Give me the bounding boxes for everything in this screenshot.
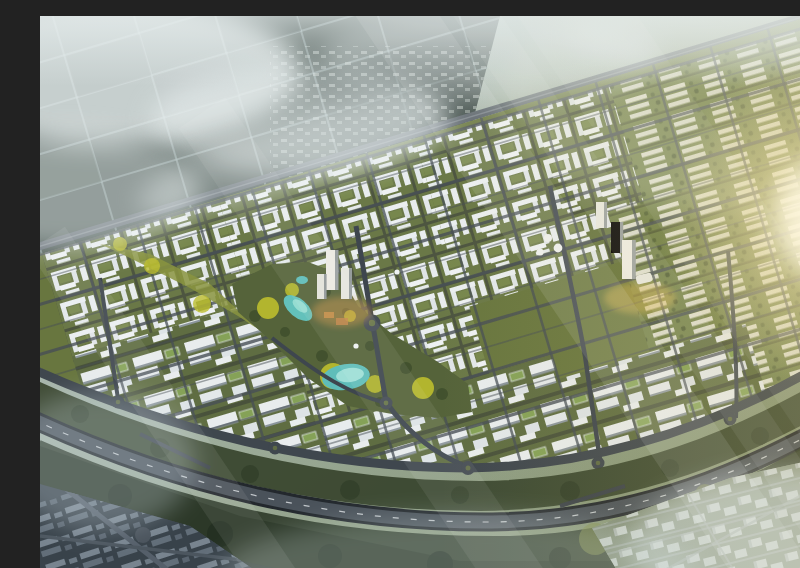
- render-canvas: aerial-architectural-rendering: [40, 16, 800, 568]
- village-sw-junction: [135, 527, 151, 543]
- aerial-city-render: aerial-architectural-rendering: [40, 16, 800, 568]
- park-pavilion: [394, 269, 399, 274]
